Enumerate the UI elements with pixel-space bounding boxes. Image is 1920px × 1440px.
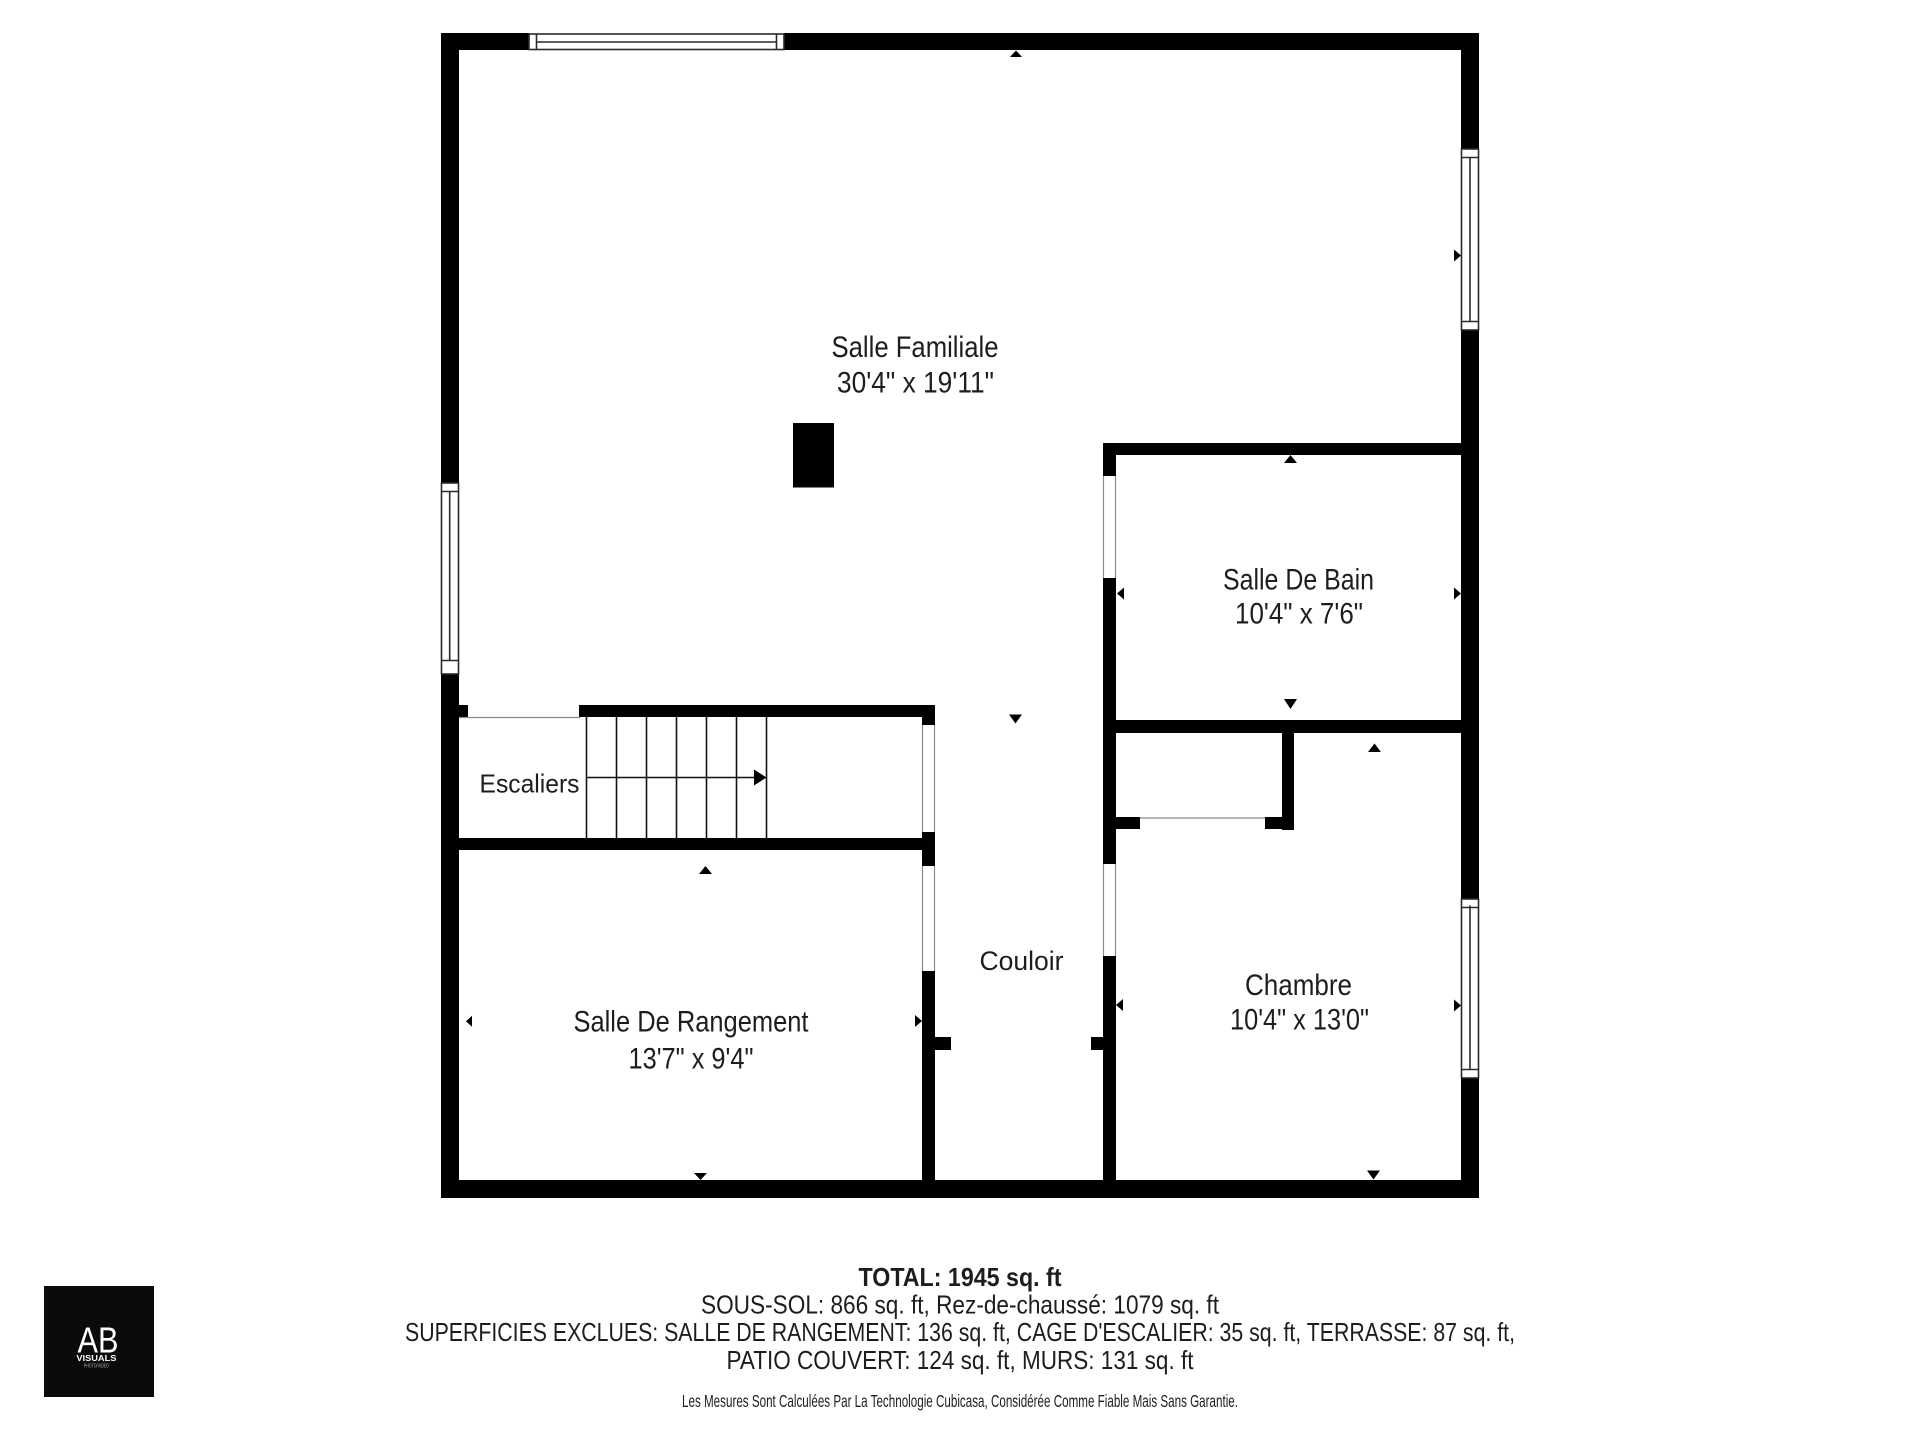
svg-text:Escaliers: Escaliers	[480, 769, 580, 799]
svg-text:30'4" x 19'11": 30'4" x 19'11"	[837, 367, 994, 400]
svg-text:Couloir: Couloir	[980, 946, 1064, 976]
svg-text:Salle De Bain: Salle De Bain	[1223, 564, 1374, 597]
svg-text:Chambre: Chambre	[1245, 969, 1352, 1002]
svg-text:Les Mesures Sont Calculées Par: Les Mesures Sont Calculées Par La Techno…	[682, 1391, 1238, 1411]
svg-text:SOUS-SOL: 866 sq. ft, Rez-de-c: SOUS-SOL: 866 sq. ft, Rez-de-chaussé: 10…	[701, 1290, 1220, 1320]
svg-text:PATIO COUVERT: 124 sq. ft, MUR: PATIO COUVERT: 124 sq. ft, MURS: 131 sq.…	[727, 1345, 1195, 1375]
svg-text:Salle Familiale: Salle Familiale	[832, 331, 999, 364]
svg-text:10'4" x 7'6": 10'4" x 7'6"	[1235, 598, 1363, 631]
svg-text:Salle De Rangement: Salle De Rangement	[574, 1006, 810, 1039]
svg-text:VISUALS: VISUALS	[76, 1353, 116, 1363]
svg-text:10'4" x 13'0": 10'4" x 13'0"	[1230, 1004, 1369, 1037]
svg-text:SUPERFICIES EXCLUES: SALLE DE: SUPERFICIES EXCLUES: SALLE DE RANGEMENT:…	[405, 1317, 1515, 1347]
svg-text:TOTAL: 1945 sq. ft: TOTAL: 1945 sq. ft	[859, 1262, 1062, 1292]
svg-text:PHOTO/VIDEO: PHOTO/VIDEO	[84, 1364, 109, 1370]
svg-text:13'7" x 9'4": 13'7" x 9'4"	[629, 1043, 754, 1076]
